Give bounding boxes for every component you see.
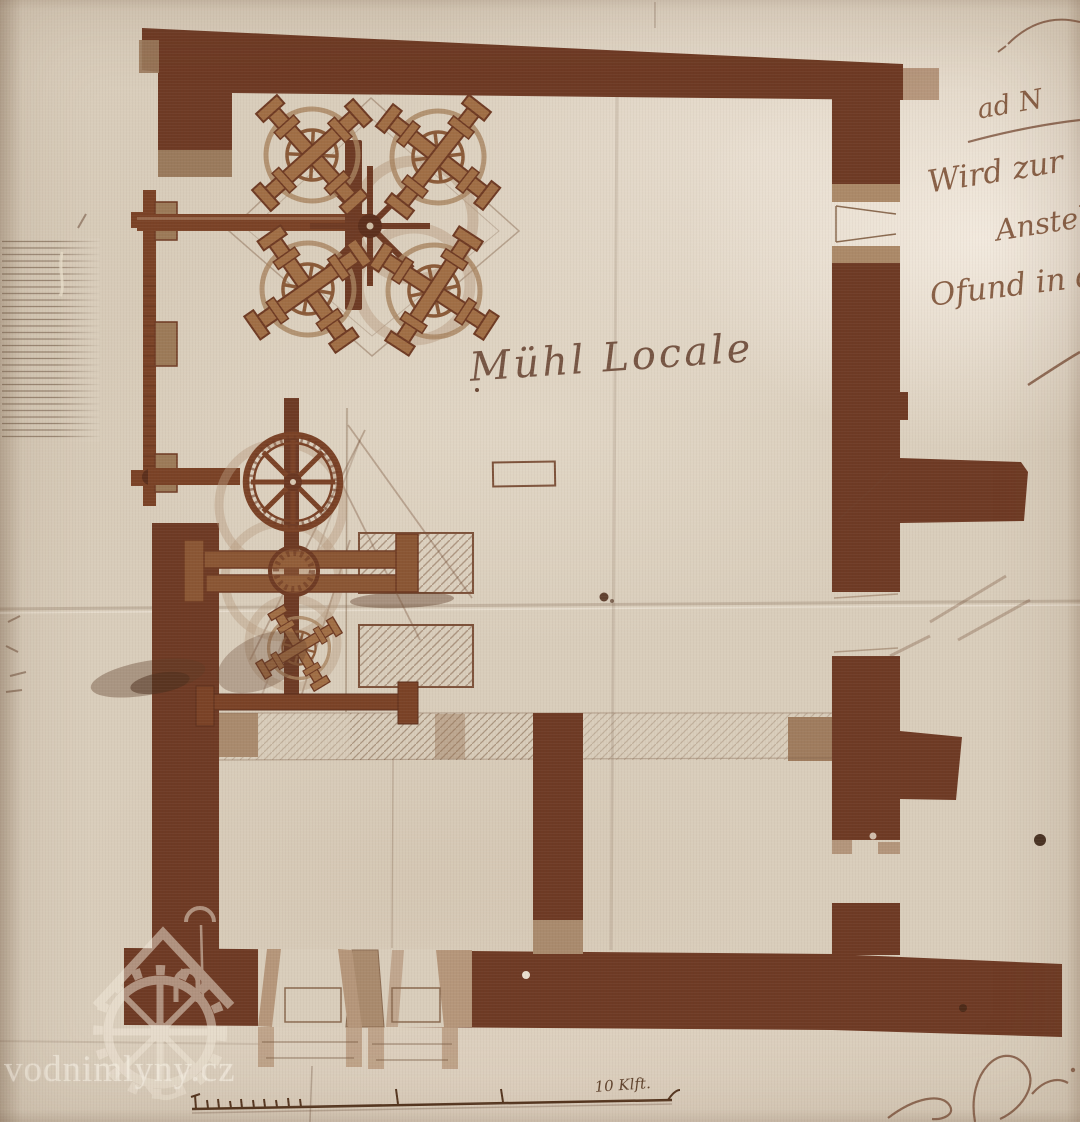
millstone-beddings [350, 461, 555, 687]
exterior-walls [124, 28, 1062, 1037]
scanned-mill-plan-page: Mühl Locale ad N Wird zur Anstellu Ofund… [0, 0, 1080, 1122]
window-splay [836, 206, 896, 242]
hopper-rect [493, 461, 555, 486]
left-wall-opening-cap [158, 150, 232, 177]
interior-walls [219, 713, 832, 954]
wall-wing [900, 458, 1028, 523]
crown-gear-assembly [241, 92, 503, 359]
signature-flourish [888, 1056, 1075, 1122]
millstone-top-right [373, 92, 502, 221]
watermark-text: vodnimlyny.cz [4, 1048, 236, 1091]
floor-plan-drawing [0, 0, 1080, 1122]
top-wall [142, 28, 903, 151]
millstone-bottom-left [241, 222, 375, 356]
interior-partition-wall [533, 713, 583, 920]
wall-stub [900, 731, 962, 800]
door-steps [258, 1027, 458, 1069]
millstone-bottom-right [365, 222, 503, 360]
pit-wheel [246, 435, 340, 529]
water-channel-hatch [2, 214, 100, 442]
bottom-door-openings [258, 949, 472, 1069]
